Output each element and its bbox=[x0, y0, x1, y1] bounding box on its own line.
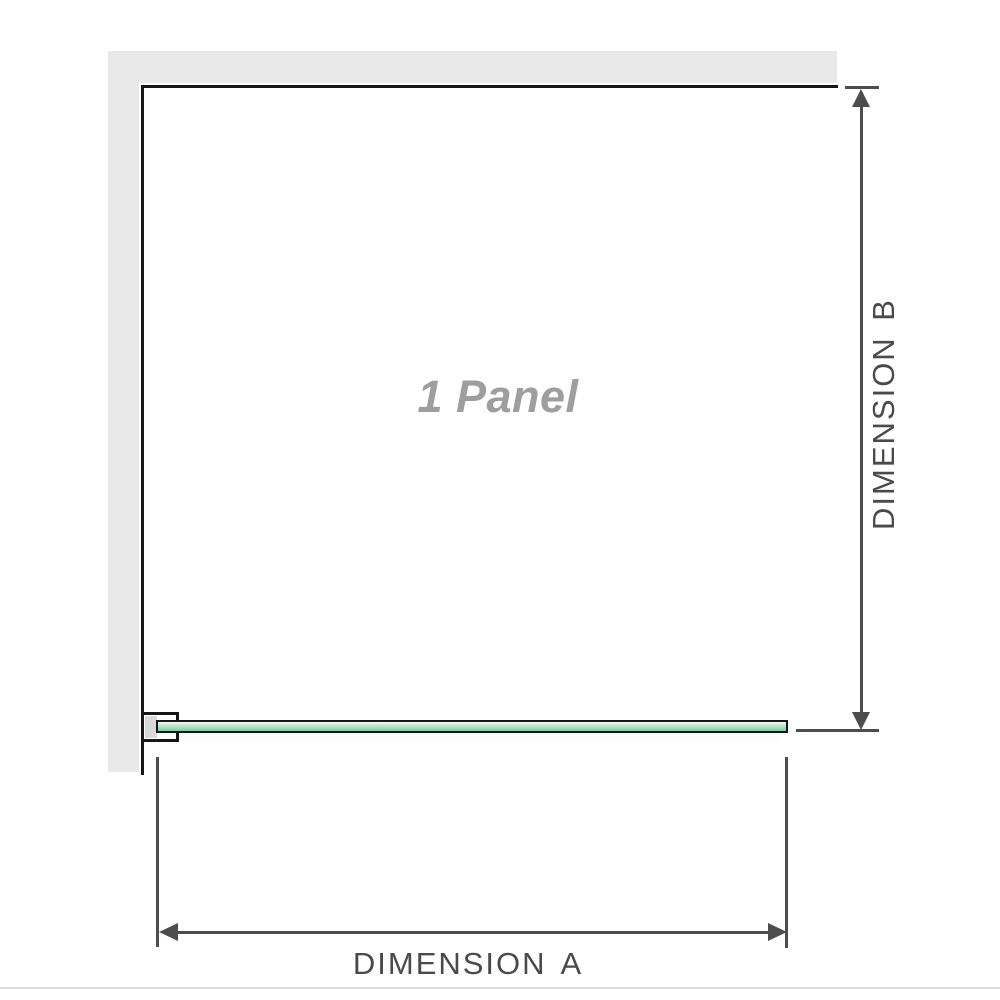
dimension-a-label: DIMENSION A bbox=[353, 946, 583, 982]
glass-panel-bar bbox=[156, 720, 788, 733]
dimension-a-left-tick bbox=[156, 757, 159, 947]
dimension-b-line bbox=[860, 92, 863, 716]
wall-top bbox=[108, 51, 837, 83]
panel-left-edge-line bbox=[141, 85, 144, 775]
arrow-left-icon bbox=[159, 923, 178, 941]
page-bottom-rule bbox=[0, 987, 1000, 989]
arrow-up-icon bbox=[852, 89, 870, 107]
panel-dimension-diagram: 1 Panel DIMENSION B DIMENSION A bbox=[0, 0, 1000, 1000]
panel-top-edge-line bbox=[141, 85, 838, 88]
dimension-b-label: DIMENSION B bbox=[866, 298, 902, 530]
dimension-a-right-tick bbox=[785, 757, 788, 948]
panel-count-label: 1 Panel bbox=[417, 371, 578, 423]
arrow-right-icon bbox=[768, 923, 787, 941]
arrow-down-icon bbox=[852, 712, 870, 730]
wall-left bbox=[108, 51, 139, 772]
dimension-a-line bbox=[163, 931, 783, 934]
